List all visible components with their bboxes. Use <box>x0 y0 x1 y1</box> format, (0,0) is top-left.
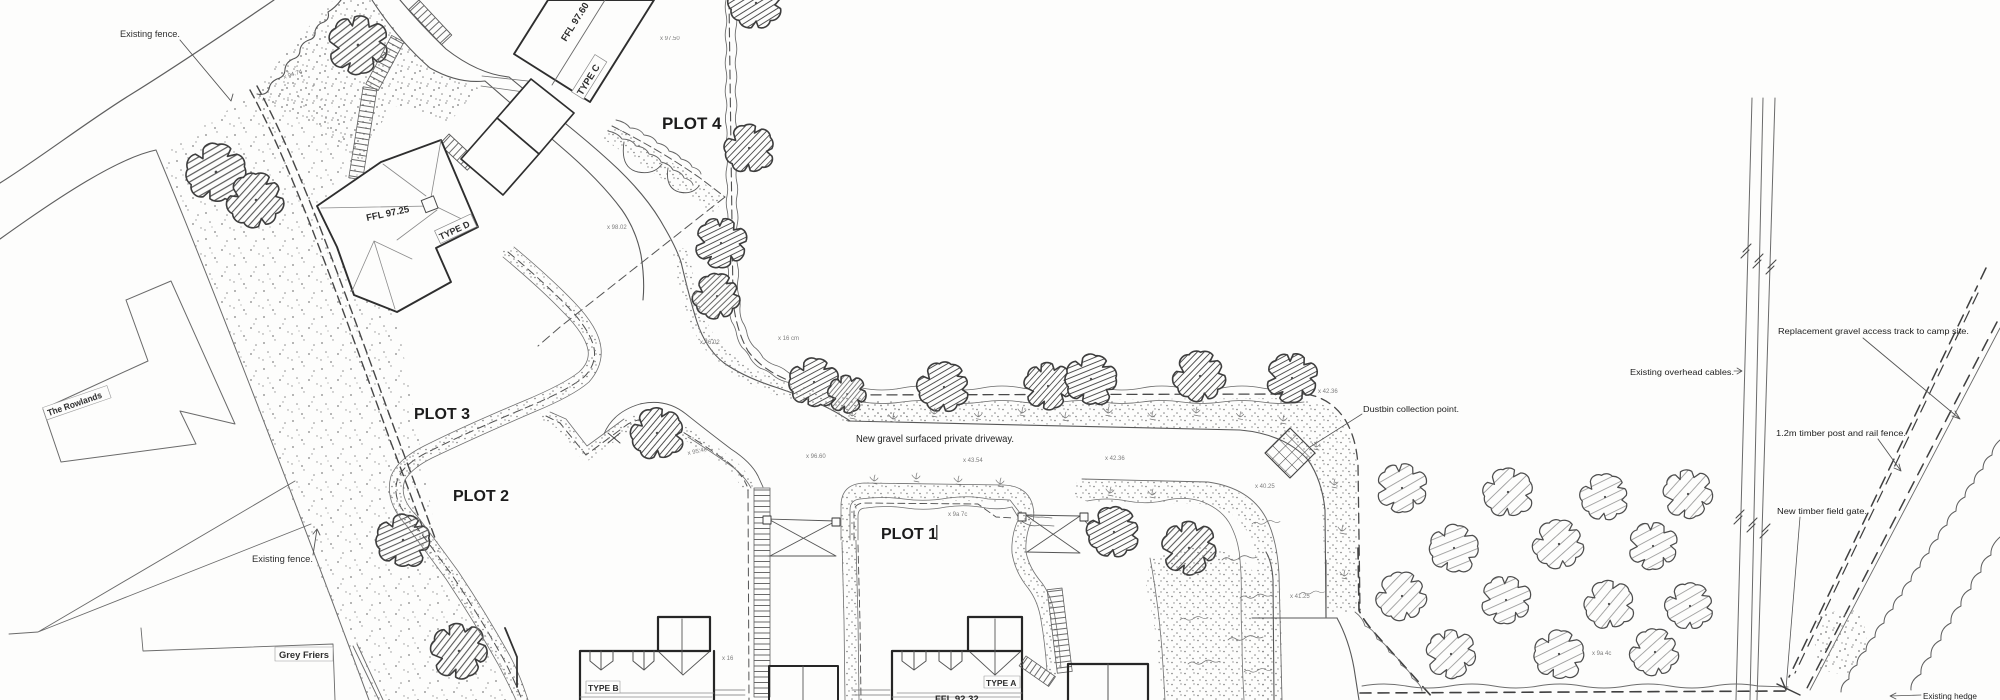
svg-text:PLOT 4: PLOT 4 <box>662 114 722 133</box>
svg-text:New timber field gate.: New timber field gate. <box>1777 506 1867 516</box>
svg-text:1.2m timber post and rail fenc: 1.2m timber post and rail fence. <box>1776 428 1906 438</box>
svg-text:x 16 cm: x 16 cm <box>778 336 799 342</box>
svg-text:x 9a 4c: x 9a 4c <box>1592 651 1611 657</box>
svg-text:TYPE A: TYPE A <box>986 678 1016 688</box>
svg-text:x 42.36: x 42.36 <box>1105 456 1125 462</box>
svg-text:TYPE B: TYPE B <box>588 683 619 693</box>
svg-text:x 16: x 16 <box>722 656 734 662</box>
svg-text:x 97.50: x 97.50 <box>660 36 680 42</box>
svg-text:PLOT 1: PLOT 1 <box>881 526 937 543</box>
svg-text:New gravel surfaced private dr: New gravel surfaced private driveway. <box>856 433 1014 445</box>
svg-text:Replacement gravel access tra: Replacement gravel access track to camp … <box>1778 326 1969 336</box>
svg-text:x 96.60: x 96.60 <box>806 454 826 460</box>
svg-text:x 42.36: x 42.36 <box>1318 389 1338 395</box>
svg-text:Grey Friers: Grey Friers <box>279 650 329 660</box>
svg-text:PLOT 2: PLOT 2 <box>453 488 509 505</box>
svg-text:x 41.25: x 41.25 <box>1290 594 1310 600</box>
svg-text:FFL 92.32: FFL 92.32 <box>935 694 979 700</box>
svg-text:PLOT 3: PLOT 3 <box>414 406 470 423</box>
svg-text:Dustbin collection point.: Dustbin collection point. <box>1363 404 1459 414</box>
svg-text:x 43.54: x 43.54 <box>963 458 983 464</box>
svg-text:Existing hedge: Existing hedge <box>1923 691 1977 700</box>
svg-text:Existing fence.: Existing fence. <box>252 554 313 564</box>
svg-text:Existing fence.: Existing fence. <box>120 29 180 39</box>
svg-text:x 9a 7c: x 9a 7c <box>948 512 967 518</box>
svg-text:Existing overhead cables.: Existing overhead cables. <box>1630 367 1734 377</box>
svg-text:x 98.02: x 98.02 <box>607 225 627 231</box>
svg-text:x 40.25: x 40.25 <box>1255 484 1275 490</box>
svg-text:x 46.02: x 46.02 <box>700 340 720 346</box>
